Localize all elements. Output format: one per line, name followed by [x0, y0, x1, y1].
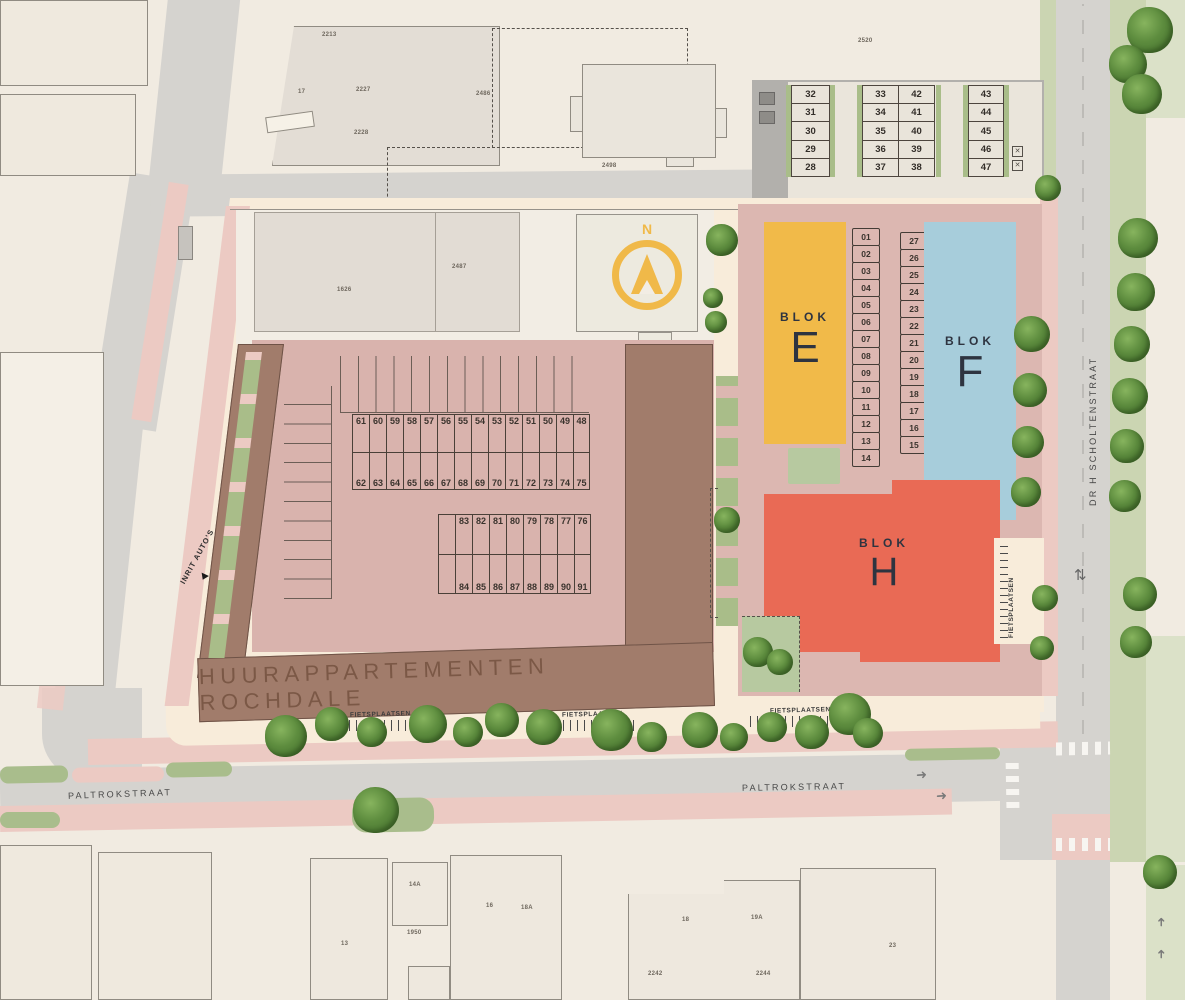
court-parking-row-2: 6263646566676869707172737475	[352, 452, 590, 490]
building-2498-tab-left	[570, 96, 583, 132]
parking-spot: 06	[852, 313, 880, 331]
parking-spot: 36	[863, 141, 898, 159]
parking-spot: 46	[969, 141, 1003, 159]
parking-spot: 08	[852, 347, 880, 365]
median-island	[0, 812, 60, 828]
blok-prefix: BLOK	[945, 334, 995, 348]
parking-spot: 88	[523, 555, 540, 593]
parking-spot: 12	[852, 415, 880, 433]
parking-spot: 91	[574, 555, 591, 593]
building-2498	[582, 64, 716, 158]
parking-spot: 84	[455, 555, 472, 593]
parking-spot: 10	[852, 381, 880, 399]
tree-icon	[1123, 577, 1157, 611]
parcel-number: 16	[486, 903, 493, 909]
parking-spot: 61	[352, 415, 369, 452]
tree-icon	[757, 712, 787, 742]
parcel-number: 2227	[356, 87, 371, 93]
parking-spot: 44	[969, 104, 1003, 122]
road-topleft-vertical	[147, 0, 240, 200]
parking-spot: 43	[969, 86, 1003, 104]
tree-icon	[1143, 855, 1177, 889]
street-label-scholtenstraat: DR H SCHOLTENSTRAAT	[1088, 326, 1098, 506]
tree-icon	[1030, 636, 1054, 660]
tree-icon	[1110, 429, 1144, 463]
parking-spot: 66	[420, 453, 437, 489]
parking-spot: 74	[556, 453, 573, 489]
parking-spot: 53	[488, 415, 505, 452]
parking-spot: 54	[471, 415, 488, 452]
road-arrow: ➜	[1155, 917, 1167, 927]
median-island	[0, 765, 68, 783]
blok-e-building: BLOK E	[764, 222, 846, 444]
parking-spot: 69	[471, 453, 488, 489]
parking-spot: 42	[899, 86, 934, 104]
parcel-number: 2487	[452, 264, 467, 270]
parking-spot: 80	[506, 515, 523, 554]
parcel-number: 2213	[322, 32, 337, 38]
parking-spot: 14	[852, 449, 880, 467]
parking-spot: 07	[852, 330, 880, 348]
south-building	[628, 880, 800, 1000]
tree-icon	[1109, 480, 1141, 512]
rochdale-label: HUURAPPARTEMENTEN ROCHDALE	[198, 648, 713, 716]
parking-spot: 55	[454, 415, 471, 452]
map-symbol-box: ✕	[1012, 146, 1023, 157]
stall-stripes-top	[340, 356, 589, 413]
garage-stalls-left	[284, 386, 332, 599]
parking-spot: 40	[899, 122, 934, 140]
parking-spot: 49	[556, 415, 573, 452]
crosswalk-stripes	[1056, 838, 1110, 851]
parking-spot: 38	[899, 159, 934, 176]
parking-spot: 73	[539, 453, 556, 489]
parking-spot: 09	[852, 364, 880, 382]
parking-spot: 68	[454, 453, 471, 489]
median-island	[905, 747, 1000, 761]
parking-spot: 58	[403, 415, 420, 452]
parking-spot: 47	[969, 159, 1003, 176]
parcel-number: 2486	[476, 91, 491, 97]
tree-icon	[1118, 218, 1158, 258]
tree-icon	[453, 717, 483, 747]
parking-spot: 01	[852, 228, 880, 246]
utility-box	[178, 226, 193, 260]
parking-spot: 79	[523, 515, 540, 554]
tree-icon	[357, 717, 387, 747]
crosswalk-stripes	[1006, 758, 1020, 808]
parcel-number: 2244	[756, 971, 771, 977]
building-north-big	[272, 26, 500, 166]
parking-spot: 02	[852, 245, 880, 263]
tree-icon	[1120, 626, 1152, 658]
parcel-number: 23	[889, 943, 896, 949]
tree-icon	[526, 709, 562, 745]
parking-spot: 75	[573, 453, 590, 489]
tree-icon	[315, 707, 349, 741]
tree-icon	[485, 703, 519, 737]
ne-parking-column-2: 3334353637	[862, 85, 899, 177]
compass-north-label: N	[637, 221, 657, 237]
parcel-northwest-b	[0, 94, 136, 176]
parking-spot: 57	[420, 415, 437, 452]
parking-spot: 56	[437, 415, 454, 452]
blok-letter: H	[870, 552, 899, 592]
parking-spot: 62	[352, 453, 369, 489]
tree-icon	[767, 649, 793, 675]
parking-spot: 83	[455, 515, 472, 554]
tree-icon	[1122, 74, 1162, 114]
hedge-strip	[830, 85, 835, 177]
blok-letter: E	[790, 326, 819, 370]
site-plan: 2213 17 2227 2228 2486 2498 2520 3231302…	[0, 0, 1185, 1000]
parking-spot: 29	[792, 141, 829, 159]
parking-spot: 65	[403, 453, 420, 489]
parking-spot: 32	[792, 86, 829, 104]
grass-right-mid	[1146, 636, 1185, 862]
map-symbol-box: ✕	[1012, 160, 1023, 171]
blok-f-building: BLOK F	[924, 222, 1016, 520]
blok-e-label: BLOK E	[764, 310, 846, 370]
fietsplaatsen-label-vertical: FIETSPLAATSEN	[1008, 548, 1015, 638]
parking-spot: 72	[522, 453, 539, 489]
tree-icon	[703, 288, 723, 308]
ne-parking-column-4: 4344454647	[968, 85, 1004, 177]
court-parking-row-4: 8485868788899091	[438, 554, 591, 594]
median-island	[166, 761, 232, 777]
road-arrow: ➜	[916, 768, 928, 782]
hedge-strip	[1004, 85, 1009, 177]
parking-spot: 63	[369, 453, 386, 489]
south-building	[392, 862, 448, 926]
parking-spot: 76	[574, 515, 591, 554]
blok-f-label: BLOK F	[924, 334, 1016, 394]
bike-crossing	[1052, 814, 1112, 860]
tree-icon	[1114, 326, 1150, 362]
tree-icon	[714, 507, 740, 533]
road-arrow: ➜	[936, 789, 948, 803]
parking-spot: 05	[852, 296, 880, 314]
tree-icon	[1035, 175, 1061, 201]
parcel-divider	[435, 213, 436, 331]
tree-icon	[795, 715, 829, 749]
parking-spot: 50	[539, 415, 556, 452]
parking-spot: 03	[852, 262, 880, 280]
tree-icon	[682, 712, 718, 748]
bike-rack	[1000, 546, 1008, 638]
parking-spot: 78	[540, 515, 557, 554]
parking-spot: 52	[505, 415, 522, 452]
dashed-path	[710, 488, 718, 618]
existing-parcel-block	[254, 212, 520, 332]
parking-spot: 41	[899, 104, 934, 122]
parking-spot: 39	[899, 141, 934, 159]
parcel-southwest-b	[98, 852, 212, 1000]
parking-spot: 45	[969, 122, 1003, 140]
tree-icon	[409, 705, 447, 743]
south-building	[408, 966, 450, 1000]
blok-letter: F	[957, 350, 984, 394]
hedge-strip	[936, 85, 941, 177]
parcel-number: 18	[682, 917, 689, 923]
parcel-number: 2498	[602, 163, 617, 169]
parcel-number: 19A	[751, 915, 763, 921]
ne-parking-column-1: 3231302928	[791, 85, 830, 177]
court-parking-row-3: 8382818079787776	[438, 514, 591, 554]
tree-icon	[706, 224, 738, 256]
center-parking-left: 0102030405060708091011121314	[852, 229, 880, 467]
tree-icon	[1117, 273, 1155, 311]
tree-icon	[1032, 585, 1058, 611]
compass-needle-notch	[639, 280, 655, 294]
parking-spot: 59	[386, 415, 403, 452]
building-2498-tab-bottom	[666, 157, 694, 167]
parcel-number: 14A	[409, 882, 421, 888]
tree-icon	[1013, 373, 1047, 407]
parking-spot	[438, 555, 455, 593]
building-2498-tab-right	[715, 108, 727, 138]
parking-spot: 34	[863, 104, 898, 122]
parking-spot: 77	[557, 515, 574, 554]
blok-prefix: BLOK	[859, 536, 909, 550]
tree-icon	[705, 311, 727, 333]
tree-icon	[265, 715, 307, 757]
ne-parking-column-3: 4241403938	[898, 85, 935, 177]
parking-spot: 89	[540, 555, 557, 593]
parking-spot: 13	[852, 432, 880, 450]
parcel-southwest-a	[0, 845, 92, 1000]
tree-icon	[1012, 426, 1044, 458]
road-centerline	[1082, 4, 1084, 734]
parcel-northwest-a	[0, 0, 148, 86]
parcel-number: 18A	[521, 905, 533, 911]
parking-spot	[438, 515, 455, 554]
parcel-number: 13	[341, 941, 348, 947]
parcel-number: 2520	[858, 38, 873, 44]
median-island-pink	[72, 766, 164, 783]
parking-spot: 33	[863, 86, 898, 104]
blok-prefix: BLOK	[780, 310, 830, 324]
parking-spot: 35	[863, 122, 898, 140]
parking-spot: 87	[506, 555, 523, 593]
parking-spot: 28	[792, 159, 829, 176]
parcel-number: 2228	[354, 130, 369, 136]
hedge-row-right	[716, 376, 738, 626]
tree-icon	[637, 722, 667, 752]
parking-spot: 11	[852, 398, 880, 416]
parking-spot: 64	[386, 453, 403, 489]
south-building	[450, 855, 562, 1000]
south-building	[800, 868, 936, 1000]
parking-spot: 67	[437, 453, 454, 489]
rochdale-wing-right	[625, 344, 713, 646]
green-patch	[788, 448, 840, 484]
tree-icon	[1112, 378, 1148, 414]
court-parking-row-1: 6160595857565554535251504948	[352, 414, 590, 452]
parking-spot: 60	[369, 415, 386, 452]
parking-spot: 48	[573, 415, 590, 452]
blok-h-label: BLOK H	[824, 536, 944, 592]
crosswalk-stripes	[1056, 742, 1110, 756]
street-label-paltrokstraat-east: PALTROKSTRAAT	[742, 781, 846, 793]
parcel-number: 2242	[648, 971, 663, 977]
parcel-number: 1626	[337, 287, 352, 293]
dumpster	[759, 111, 775, 124]
parking-spot: 37	[863, 159, 898, 176]
tree-icon	[591, 709, 633, 751]
tree-icon	[1011, 477, 1041, 507]
parking-spot: 51	[522, 415, 539, 452]
parking-spot: 31	[792, 104, 829, 122]
road-arrow: ➜	[1155, 949, 1167, 959]
parking-spot: 90	[557, 555, 574, 593]
parking-spot: 85	[472, 555, 489, 593]
tree-icon	[1014, 316, 1050, 352]
building-west	[0, 352, 104, 686]
parking-spot: 71	[505, 453, 522, 489]
parking-spot: 04	[852, 279, 880, 297]
dumpster	[759, 92, 775, 105]
tree-icon	[853, 718, 883, 748]
parking-spot: 86	[489, 555, 506, 593]
road-arrow: ⇅	[1074, 568, 1087, 583]
parking-spot: 82	[472, 515, 489, 554]
parking-spot: 81	[489, 515, 506, 554]
tree-icon	[353, 787, 399, 833]
tree-icon	[720, 723, 748, 751]
parcel-number: 1950	[407, 930, 422, 936]
parking-spot: 30	[792, 122, 829, 140]
parcel-number: 17	[298, 89, 305, 95]
south-building	[310, 858, 388, 1000]
parking-spot: 70	[488, 453, 505, 489]
